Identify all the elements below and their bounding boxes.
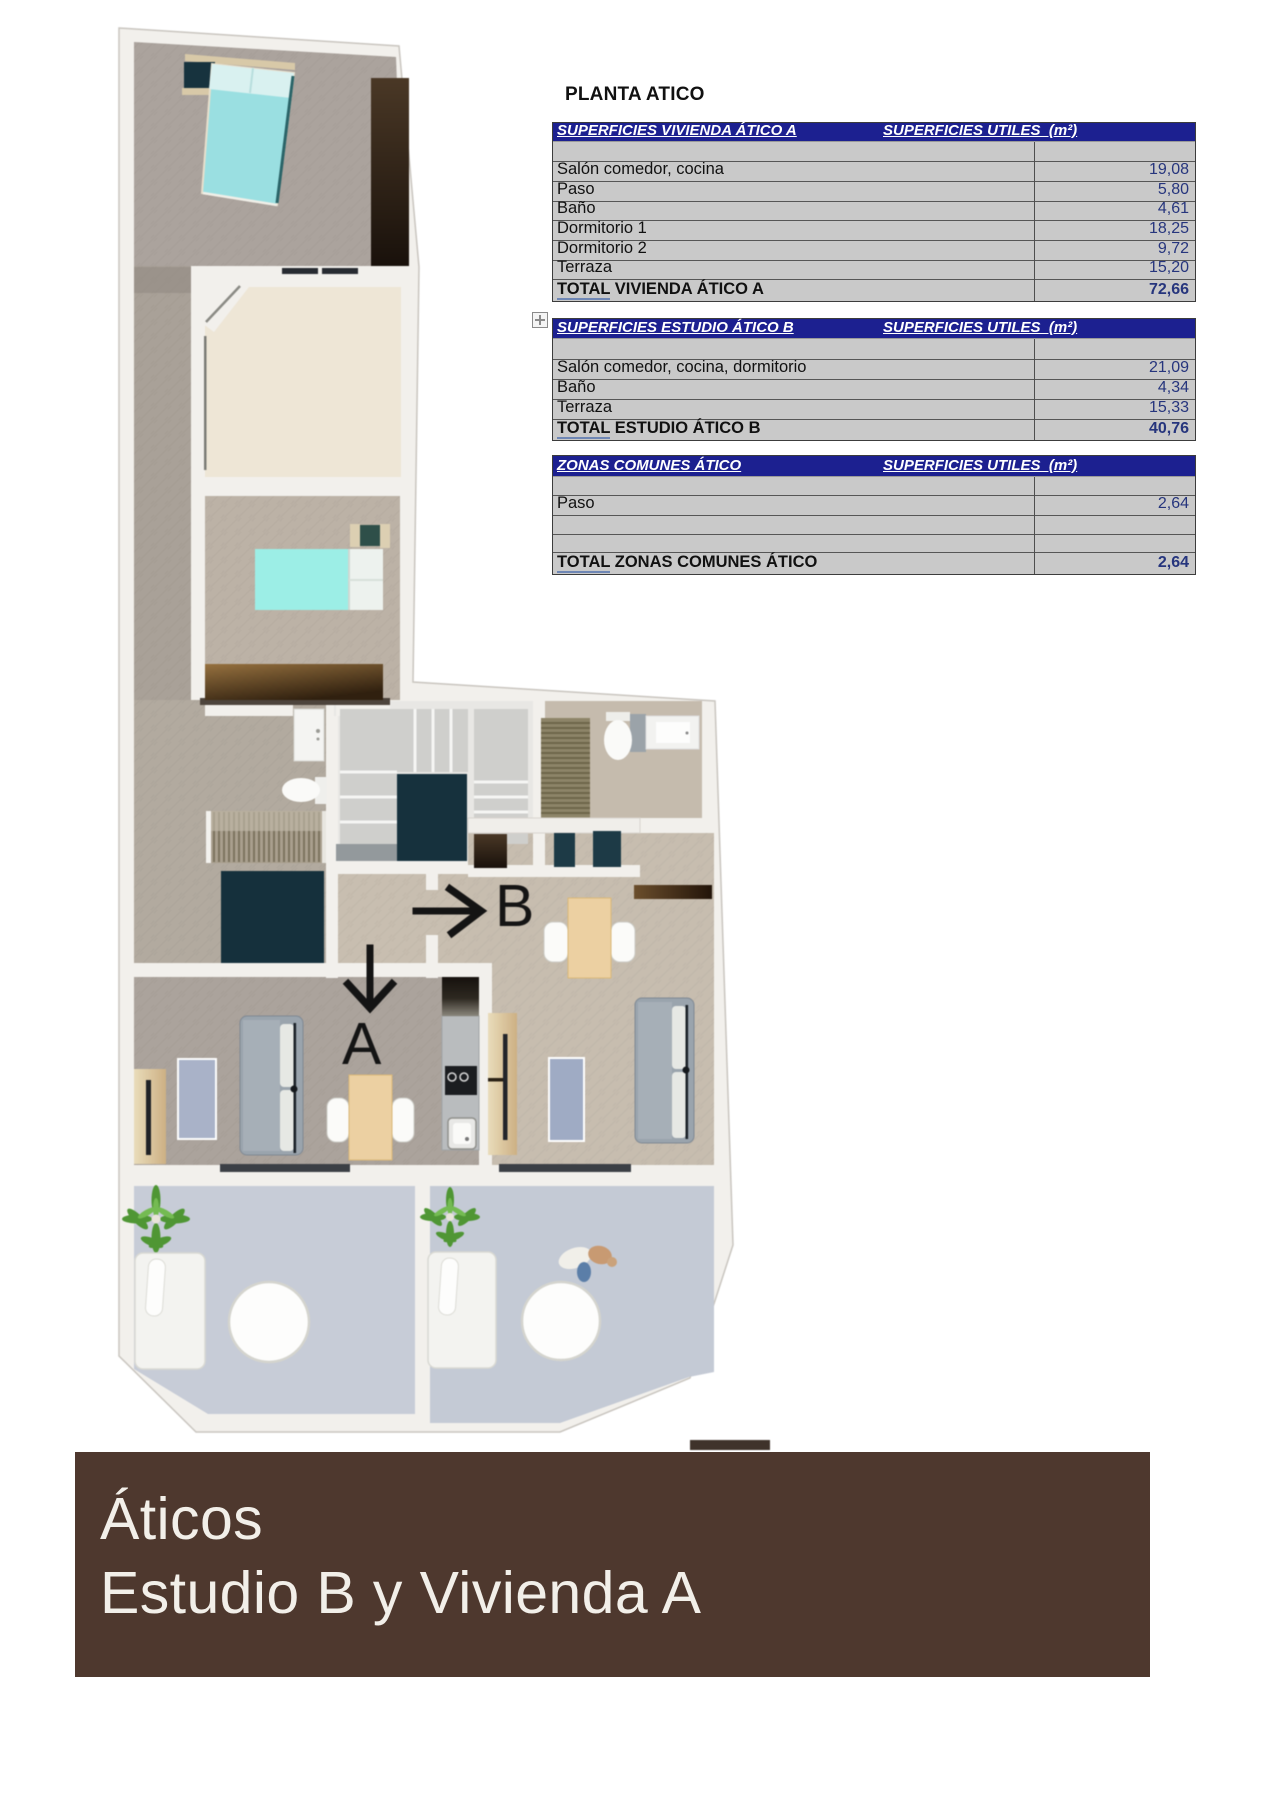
svg-text:A: A xyxy=(342,1011,382,1077)
svg-text:B: B xyxy=(495,873,534,939)
